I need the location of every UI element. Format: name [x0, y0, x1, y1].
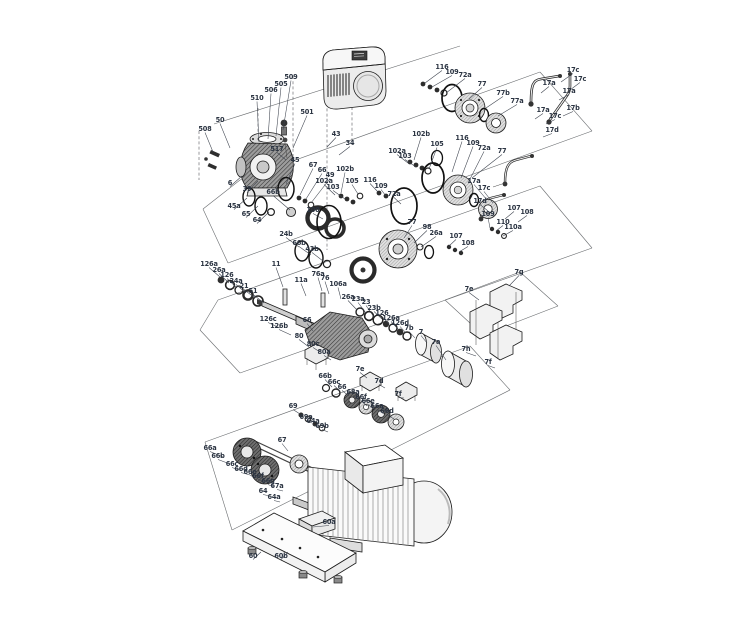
part-label: 7f [394, 390, 401, 398]
part-label: 11a [294, 276, 307, 284]
pump-mounting-bolts [204, 150, 220, 170]
part-label: 69b [315, 422, 329, 430]
sleeve-cylinders [416, 333, 473, 387]
part-label: 17a [562, 87, 575, 95]
part-label: 60b [274, 552, 288, 560]
part-label: 107 [507, 204, 521, 212]
part-label: 17c [478, 184, 491, 192]
part-label: 17d [545, 126, 559, 134]
part-label: 66b [292, 239, 306, 247]
part-label: 43 [332, 130, 341, 138]
part-label: 64 [253, 216, 262, 224]
motor-control-unit [323, 47, 386, 109]
part-label: 7a [432, 338, 441, 346]
part-label: 103 [326, 183, 340, 191]
part-label: 7b [405, 324, 414, 332]
part-label: 67 [309, 161, 318, 169]
part-label: 108 [461, 239, 475, 247]
part-label: 109 [374, 182, 388, 190]
part-label: 109 [445, 68, 459, 76]
part-label: 66b [266, 188, 280, 196]
part-label: 66b [211, 452, 225, 460]
part-label: 505 [274, 80, 288, 88]
part-label: 34 [346, 139, 355, 147]
part-label: 509 [284, 73, 298, 81]
part-label: 17c [567, 66, 580, 74]
part-label: 51 [249, 287, 258, 295]
part-label: 102b [412, 130, 430, 138]
part-label: 77 [408, 218, 417, 226]
part-label: 24b [279, 230, 293, 238]
clamp-brackets [470, 284, 522, 360]
part-label: 66d [380, 407, 394, 415]
part-label: 39 [243, 185, 252, 193]
part-label: 508 [198, 125, 212, 133]
part-label: 45a [227, 202, 240, 210]
part-label: 60a [322, 518, 335, 526]
exploded-diagram-page: 50850510506505509501517639433445a6564456… [0, 0, 752, 632]
part-label: 11 [272, 260, 281, 268]
part-label: 17c [574, 75, 587, 83]
part-label: 67 [278, 436, 287, 444]
part-label: 69 [289, 402, 298, 410]
part-label: 80 [295, 332, 304, 340]
part-label: 517 [270, 145, 284, 153]
pump-exploded-view-diagram: 50850510506505509501517639433445a6564456… [0, 0, 752, 632]
part-label: 65 [242, 210, 251, 218]
part-label: 67a [270, 482, 283, 490]
part-label: 7f [484, 358, 491, 366]
part-label: 109 [481, 210, 495, 218]
part-label: 72a [387, 190, 400, 198]
part-label: 17a [536, 106, 549, 114]
bearing-flange-group [352, 230, 434, 282]
part-label: 80a [317, 348, 330, 356]
part-label: 17d [473, 197, 487, 205]
part-label: 106a [329, 280, 346, 288]
part-label: 77 [478, 80, 487, 88]
part-label: 72a [458, 71, 471, 79]
rubber-foot [334, 575, 342, 583]
part-label: 7e [465, 285, 474, 293]
part-label: 43b [305, 245, 319, 253]
part-label: 7g [515, 268, 524, 276]
part-label: 7d [375, 377, 384, 385]
part-label: 7e [356, 365, 365, 373]
part-label: 7 [419, 328, 424, 336]
part-label: 60 [249, 552, 258, 560]
part-label: 66 [303, 316, 312, 324]
part-label: 105 [345, 177, 359, 185]
part-label: 80c [307, 340, 320, 348]
part-label: 102b [336, 165, 354, 173]
part-label: 17c [549, 112, 562, 120]
part-label: 26a [429, 229, 442, 237]
part-label: 64a [267, 493, 280, 501]
part-label: 501 [300, 108, 314, 116]
part-label: 66a [203, 444, 216, 452]
part-label: 105 [430, 140, 444, 148]
part-label: 17a [542, 79, 555, 87]
part-label: 45 [291, 156, 300, 164]
part-label: 50 [216, 116, 225, 124]
part-label: 103 [398, 152, 412, 160]
part-label: 77 [498, 147, 507, 155]
part-label: 77a [510, 97, 523, 105]
part-label: 17b [566, 104, 580, 112]
part-label: 510 [250, 94, 264, 102]
part-label: 126b [270, 322, 288, 330]
part-label: 108 [520, 208, 534, 216]
flange-seal-row-top [421, 82, 506, 133]
part-label: 7h [462, 345, 471, 353]
sensor-pipe-group-2 [493, 154, 534, 187]
rubber-foot [299, 570, 307, 578]
part-label: 21 [240, 282, 249, 290]
part-label: 72a [477, 144, 490, 152]
part-label: 77b [496, 89, 510, 97]
part-label: 6 [228, 179, 233, 187]
part-label: 100 [306, 206, 320, 214]
part-label: 110a [504, 223, 521, 231]
